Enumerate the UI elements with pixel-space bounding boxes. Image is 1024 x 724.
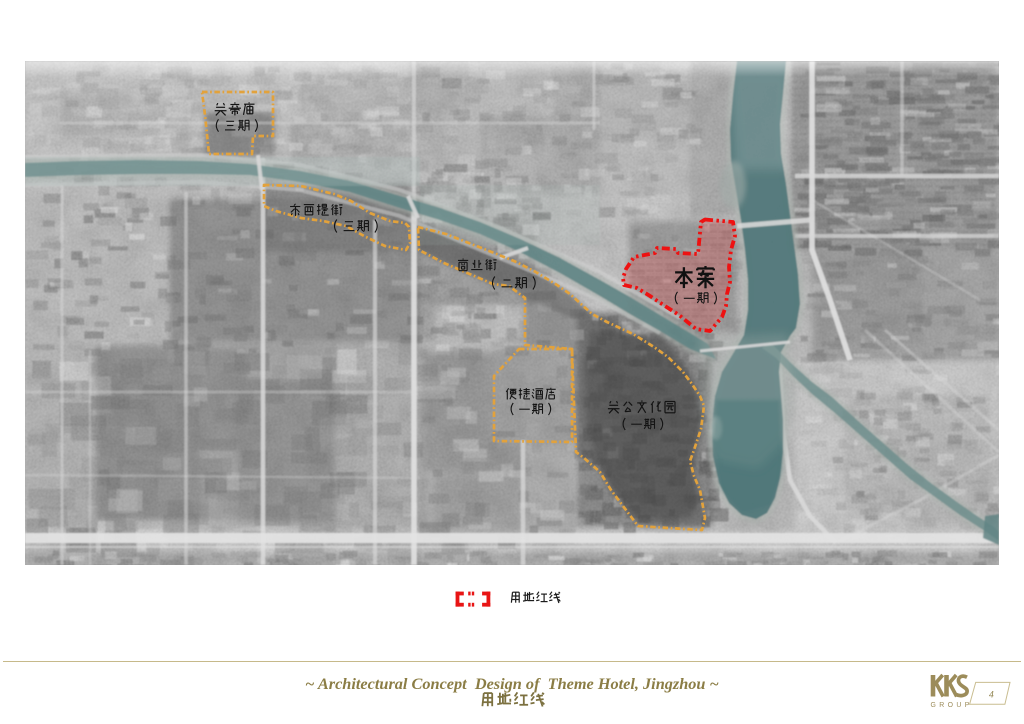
svg-text:4: 4 bbox=[989, 690, 994, 700]
